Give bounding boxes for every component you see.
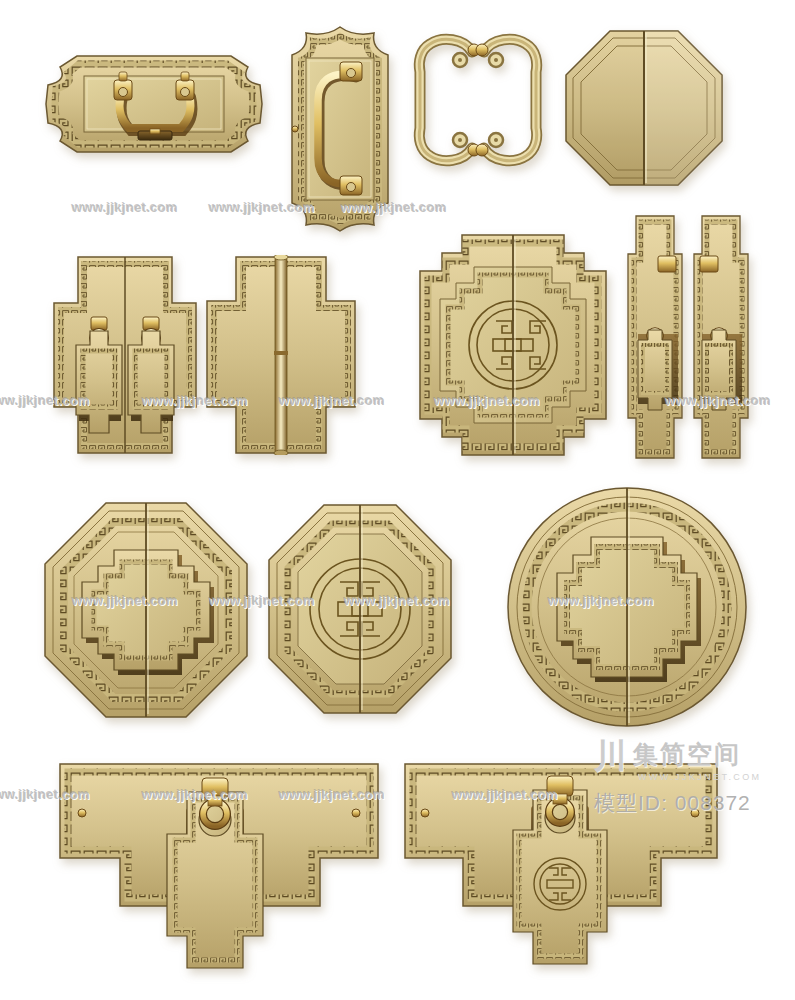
product-render-canvas: www.jjkjnet.comwww.jjkjnet.comwww.jjkjne… — [0, 0, 795, 1000]
hardware-double-stepped-plates — [52, 255, 198, 455]
model-id-label: 模型ID: — [594, 791, 668, 814]
brand-logo-mark: 川 — [594, 741, 627, 771]
model-id-value: 008372 — [675, 791, 751, 814]
cloud-pull-left — [419, 39, 480, 160]
tall-plate-right — [694, 216, 748, 458]
hardware-lobed-rect-backplate — [44, 52, 264, 156]
mounting-pin-left — [421, 809, 429, 817]
knob — [700, 256, 718, 272]
hinge-barrel — [274, 255, 288, 455]
barrel-cap-top — [274, 255, 288, 260]
mounting-pin-left — [78, 809, 86, 817]
hardware-bar-backplate-pendant — [56, 758, 382, 980]
brand-site-url: WWW.JJKJNET.COM — [638, 772, 794, 782]
hardware-tall-plate-pair — [626, 214, 750, 460]
hardware-octagon-medallion — [266, 502, 454, 716]
barrel-cap-bottom — [274, 450, 288, 455]
pendant-assembly — [702, 330, 742, 410]
scroll-hook-bottom-eye — [458, 138, 462, 142]
hardware-octagon-stepped-cross — [42, 500, 250, 720]
latch-pin — [292, 126, 298, 132]
inner-panel — [84, 76, 224, 132]
tall-plate-left — [628, 216, 682, 458]
watermark-text: www.jjkjnet.com — [72, 200, 178, 215]
knob — [547, 776, 573, 796]
knob-neck — [553, 794, 567, 804]
handle-nub — [150, 129, 160, 134]
knob — [658, 256, 676, 272]
scroll-hook-top-eye — [458, 58, 462, 62]
hardware-vertical-lobed-plate — [282, 24, 398, 234]
mounting-pin-right — [352, 809, 360, 817]
hardware-cloud-scroll-pulls — [412, 30, 544, 170]
knob-neck — [208, 796, 222, 806]
scroll-post-bottom — [340, 176, 362, 195]
hardware-round-stepped-cross — [505, 485, 749, 729]
right-leaf-highlight — [644, 28, 725, 188]
knob — [202, 778, 228, 798]
brand-watermark: 川 集简空间 WWW.JJKJNET.COM 模型ID: 008372 — [594, 738, 794, 817]
scroll-post-top — [340, 62, 362, 81]
hardware-split-octagon — [563, 28, 725, 188]
hardware-stepped-hinge — [205, 255, 357, 455]
barrel-joint — [274, 351, 288, 355]
brand-logo-row: 川 集简空间 — [594, 738, 794, 771]
brand-logo-name: 集简空间 — [633, 738, 741, 771]
model-id-line: 模型ID: 008372 — [594, 789, 794, 817]
cloud-pull-right — [476, 39, 537, 160]
left-leaf-shade — [563, 28, 644, 188]
hardware-stepped-square-medallion — [418, 233, 608, 457]
pendant-assembly — [638, 330, 678, 410]
